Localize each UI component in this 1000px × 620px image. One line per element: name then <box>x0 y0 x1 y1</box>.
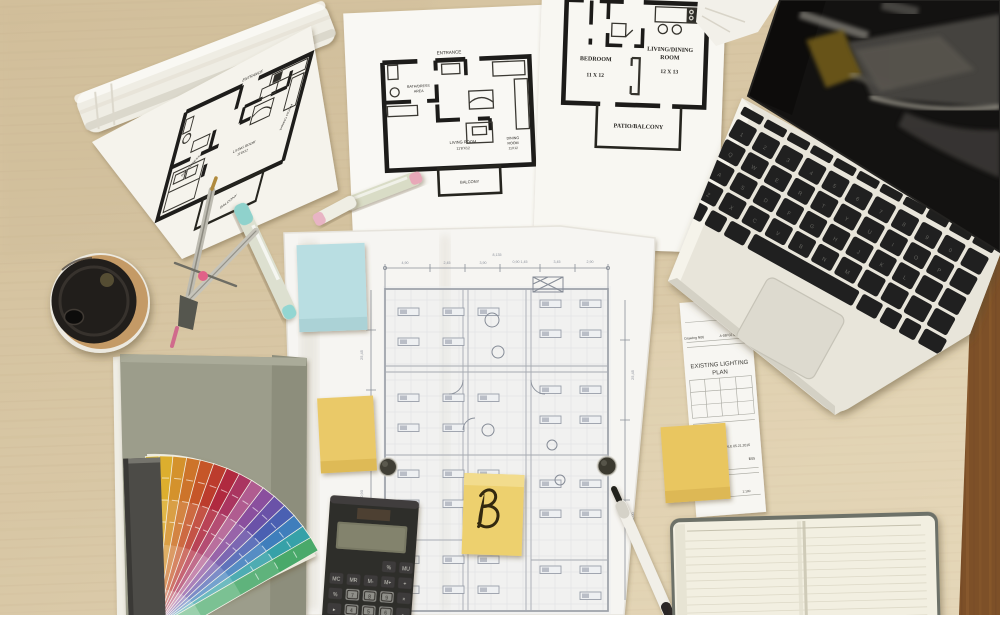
svg-text:11 X 12: 11 X 12 <box>586 72 604 79</box>
svg-text:ROOM: ROOM <box>660 55 680 62</box>
svg-text:M-: M- <box>367 579 374 585</box>
svg-text:1:100: 1:100 <box>742 489 750 494</box>
svg-text:BEDROOM: BEDROOM <box>580 56 612 63</box>
svg-text:BALCONY: BALCONY <box>460 179 480 185</box>
svg-text:3,90: 3,90 <box>480 261 487 265</box>
svg-text:DINING: DINING <box>506 136 519 141</box>
svg-text:8,135: 8,135 <box>493 253 502 257</box>
svg-text:+: + <box>403 582 406 588</box>
svg-text:6: 6 <box>384 611 387 615</box>
svg-text:2,45: 2,45 <box>444 261 451 265</box>
svg-text:12 X 13: 12 X 13 <box>660 69 678 76</box>
svg-text:MR: MR <box>349 578 358 585</box>
svg-text:0,90 1,45: 0,90 1,45 <box>513 260 528 264</box>
svg-text:ROOM: ROOM <box>507 141 518 145</box>
svg-text:M+: M+ <box>384 580 392 586</box>
svg-text:25,45: 25,45 <box>630 369 635 380</box>
svg-text:E05: E05 <box>749 457 756 461</box>
svg-text:MC: MC <box>332 577 341 584</box>
svg-text:AREA: AREA <box>414 89 425 93</box>
svg-text:25,45: 25,45 <box>359 349 364 360</box>
svg-text:PLAN: PLAN <box>712 369 728 376</box>
svg-text:MU: MU <box>402 566 411 573</box>
svg-text:3,45: 3,45 <box>554 260 561 264</box>
svg-text:4,90: 4,90 <box>402 261 409 265</box>
svg-text:×: × <box>402 597 405 603</box>
svg-text:11X12: 11X12 <box>508 146 518 150</box>
svg-text:2,90: 2,90 <box>587 260 594 264</box>
svg-text:11'8'X12: 11'8'X12 <box>456 146 470 151</box>
